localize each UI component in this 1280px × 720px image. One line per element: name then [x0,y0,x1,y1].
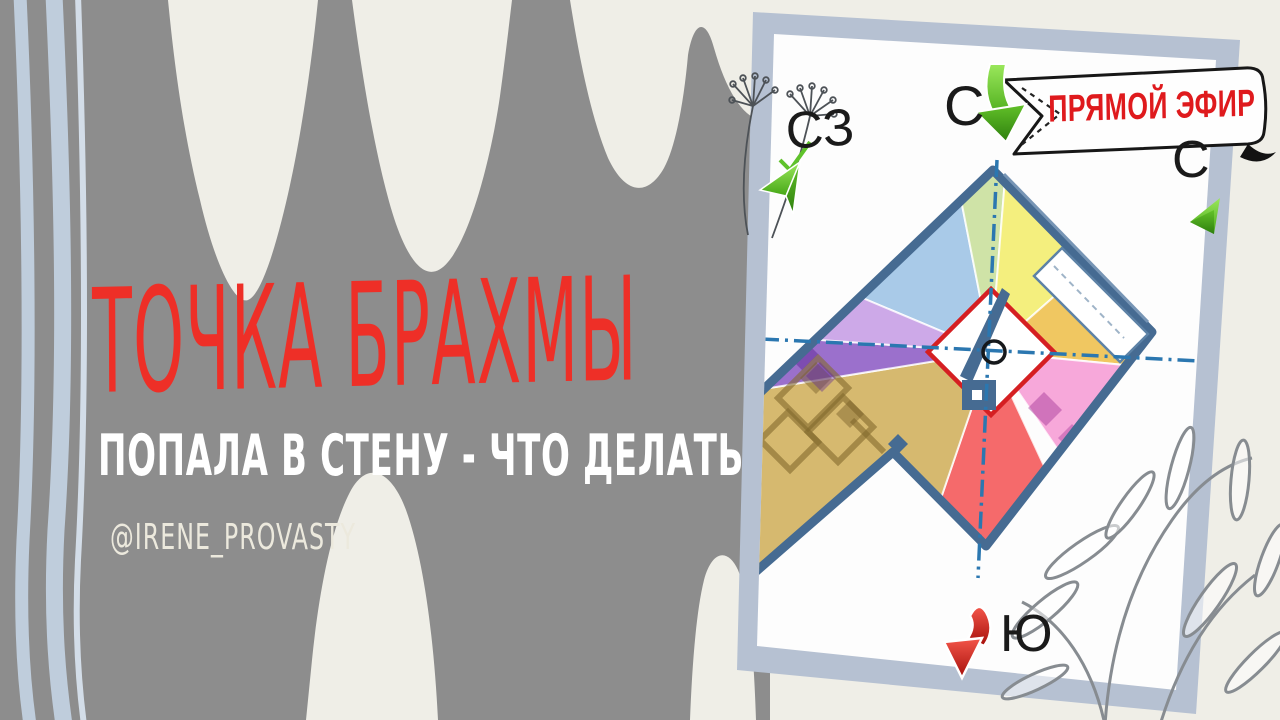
compass-north-right-label: С [1172,134,1210,186]
account-handle: @IRENE_PROVASTY [110,520,356,556]
page-subtitle: ПОПАЛА В СТЕНУ - ЧТО ДЕЛАТЬ [98,428,744,485]
compass-south-label: Ю [1000,608,1053,660]
live-badge-label: ПРЯМОЙ ЭФИР [1048,84,1256,128]
thumbnail-stage: ТОЧКА БРАХМЫ ПОПАЛА В СТЕНУ - ЧТО ДЕЛАТЬ… [0,0,1280,720]
page-title: ТОЧКА БРАХМЫ [92,257,638,414]
compass-northwest-label: СЗ [784,101,856,158]
compass-north-label: С [944,78,984,134]
